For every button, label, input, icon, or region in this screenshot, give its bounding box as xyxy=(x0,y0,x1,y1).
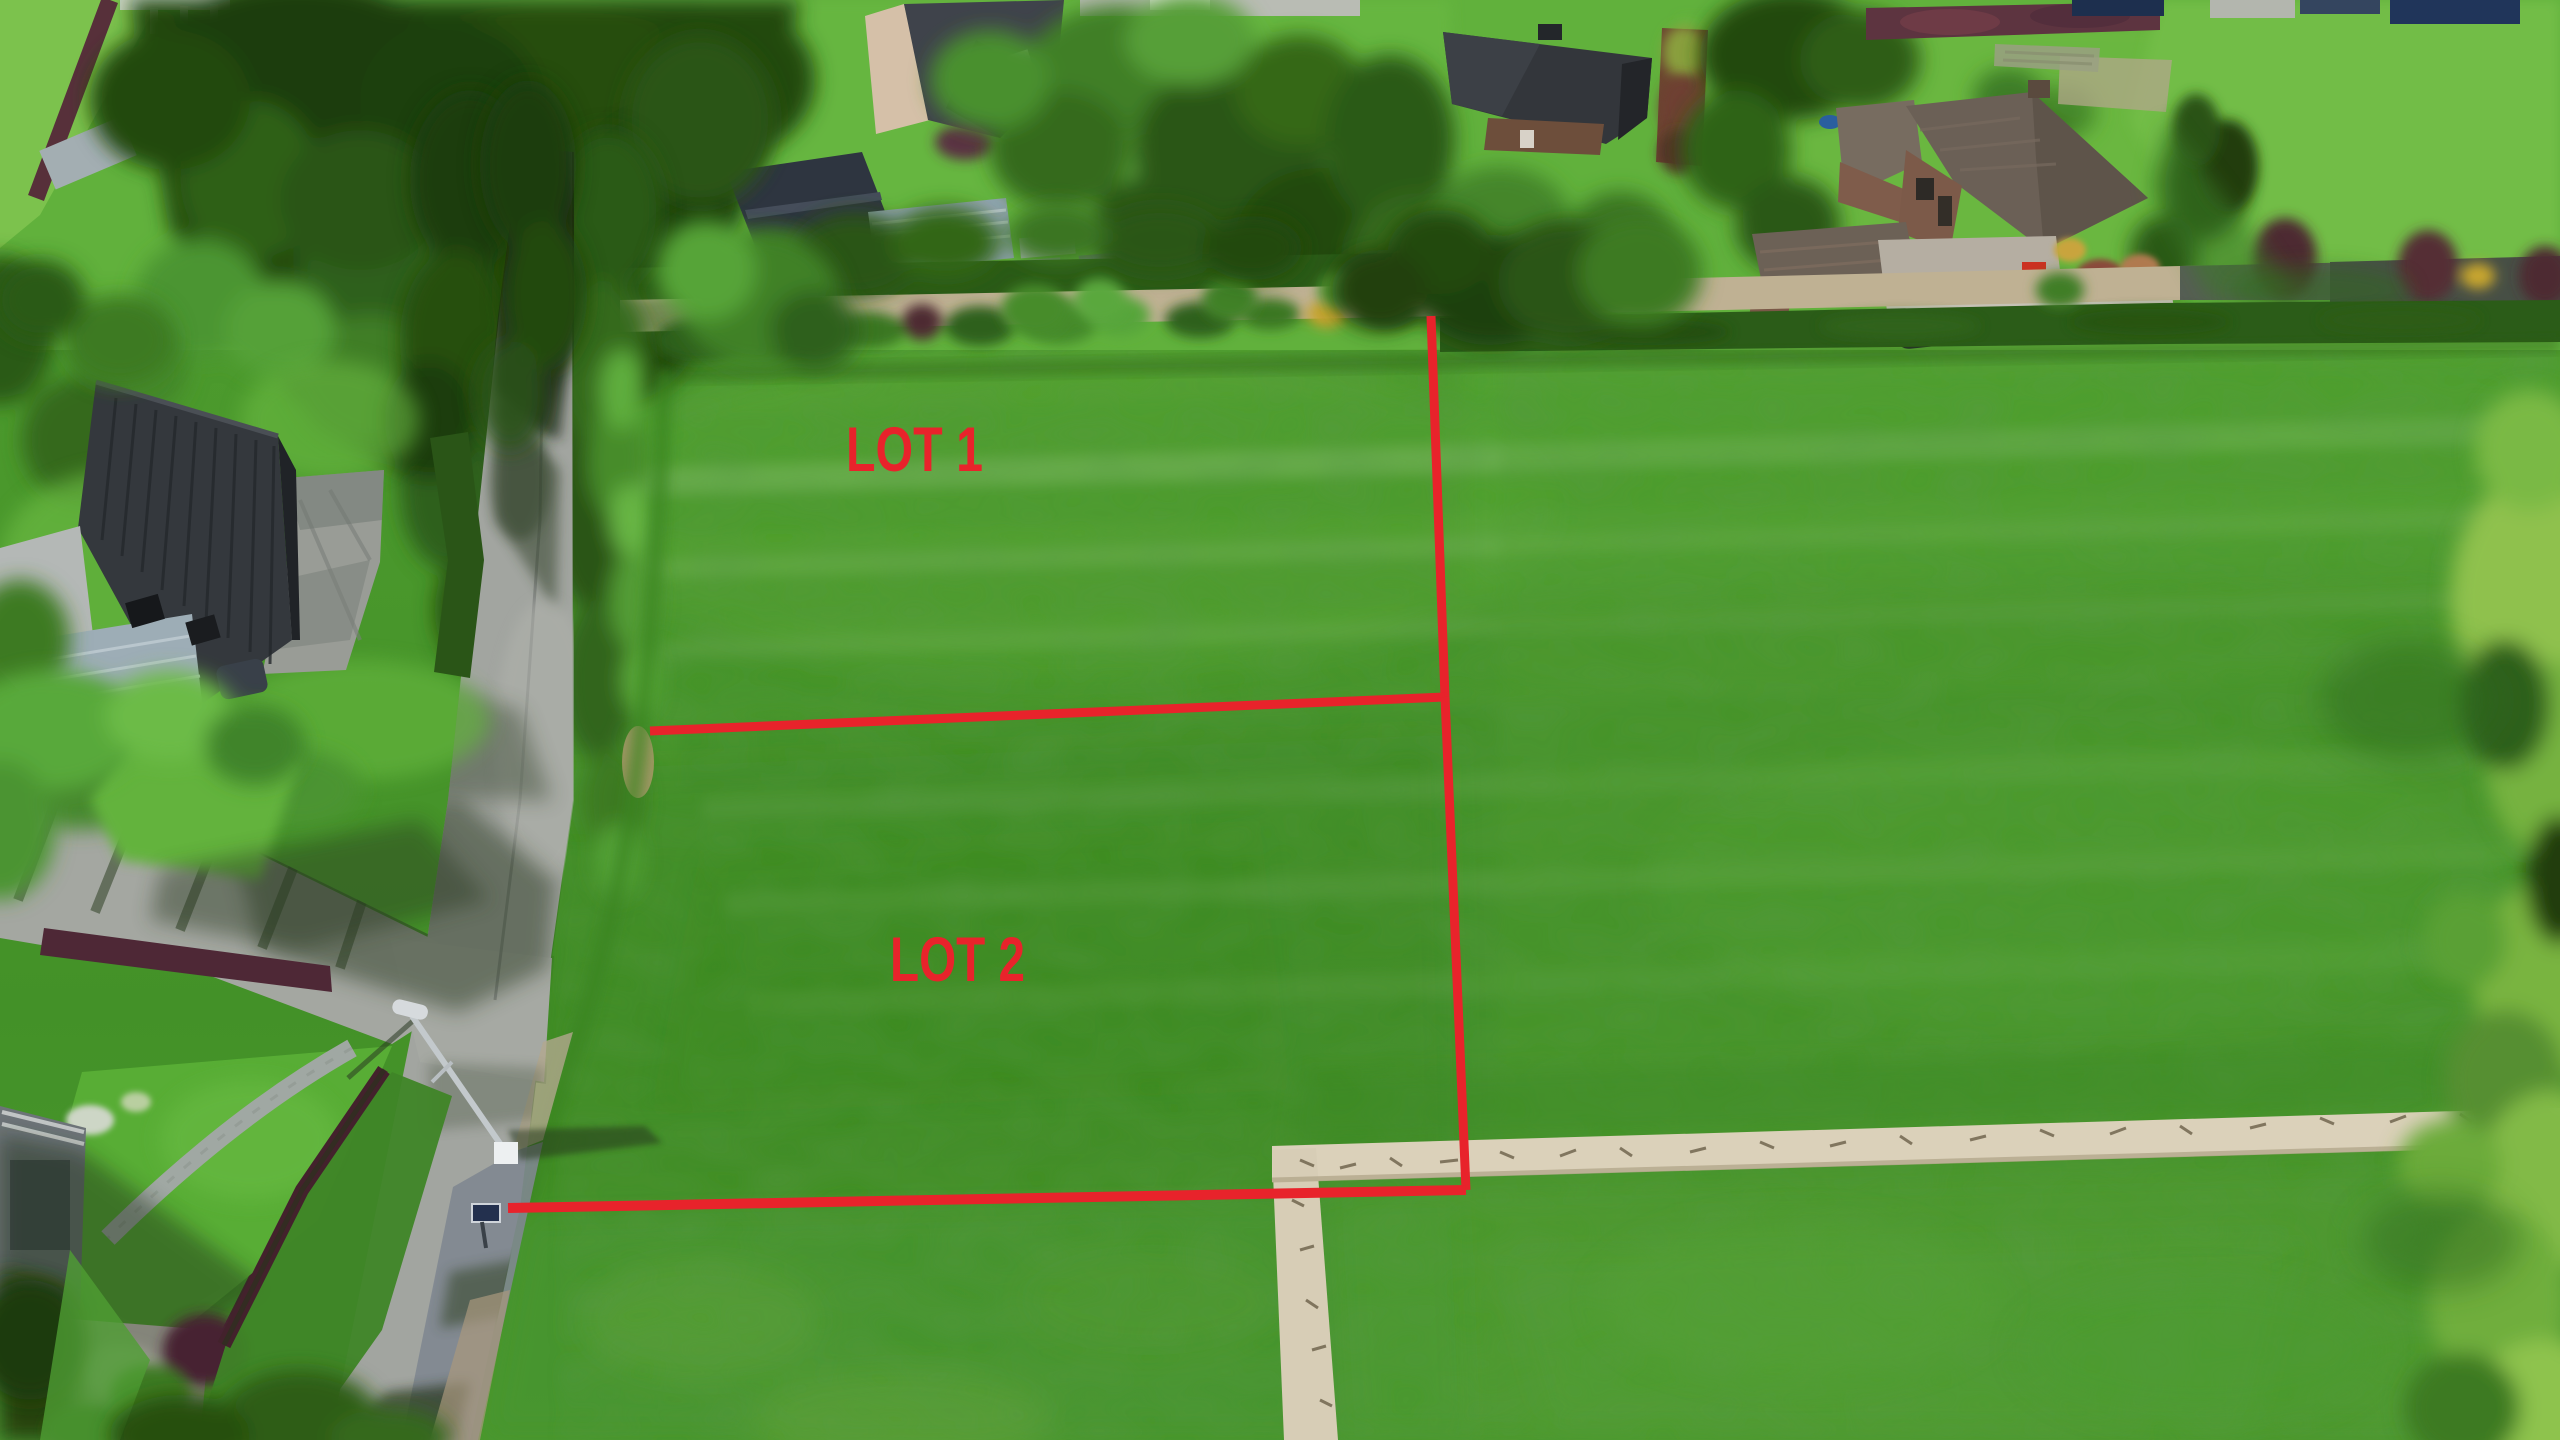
svg-text:LOT 2: LOT 2 xyxy=(890,925,1025,995)
svg-text:LOT 1: LOT 1 xyxy=(846,415,983,485)
